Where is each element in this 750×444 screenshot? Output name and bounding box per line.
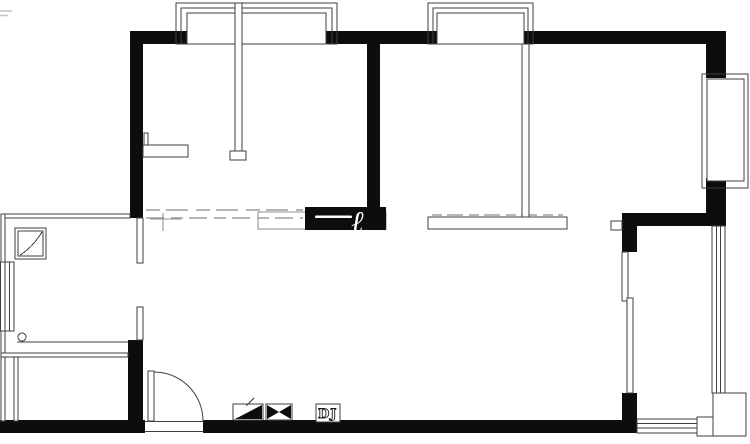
left-wall-upper <box>1 214 5 262</box>
entry-top-wall <box>3 214 130 218</box>
bay-window-top-middle <box>428 3 533 44</box>
bottom-sill <box>637 419 697 433</box>
ghost-ticks <box>150 213 181 231</box>
scan-artifact-marks <box>0 11 12 16</box>
bay-window-glass <box>707 79 744 181</box>
sliding-panel <box>627 298 633 393</box>
closet-strip <box>14 357 18 421</box>
wall-bottom-middle <box>203 420 637 433</box>
stub-balcony <box>611 221 622 230</box>
wall-bathroom-left <box>130 31 143 218</box>
bay-window-glass <box>187 13 326 44</box>
watermark-stroke <box>315 216 352 219</box>
stub-tick <box>144 133 148 145</box>
glazing-frame <box>712 226 725 393</box>
thin-wall-vertical <box>522 44 529 222</box>
sliding-panel <box>622 252 628 301</box>
wall-balcony-top <box>622 213 726 226</box>
floor-plan-canvas: DJ ℓ <box>0 0 750 444</box>
left-window <box>1 262 15 331</box>
left-wall-lower <box>1 331 5 421</box>
window-frame <box>1 262 15 331</box>
bay-window-top-left <box>176 3 337 44</box>
bay-window-glass <box>437 13 524 44</box>
bathroom-stub <box>143 133 188 157</box>
wall-watermark-block <box>305 207 386 230</box>
bay-window-right <box>702 74 748 188</box>
interior-wall-upper <box>137 218 143 263</box>
thin-wall-horizontal <box>428 217 567 229</box>
balcony-glazing <box>637 226 746 436</box>
corner-cabinet <box>15 228 46 259</box>
door-leaf <box>148 371 154 421</box>
wall-top-right <box>524 31 726 44</box>
wall-top-middle <box>326 31 437 44</box>
circle-fixture <box>18 333 26 341</box>
watermark-script-glyph: ℓ <box>351 205 364 240</box>
balcony-sliding-door <box>622 252 633 393</box>
corner-post <box>713 393 746 436</box>
wall-bedroom-divider <box>367 31 380 214</box>
door-swing-arc <box>154 372 203 421</box>
entry-door <box>145 371 203 432</box>
wall-entry-lower <box>128 340 143 423</box>
wall-balcony-left-upper <box>622 213 637 252</box>
dj-label: DJ <box>318 407 337 422</box>
wall-bottom-left <box>0 420 145 433</box>
stub-wall <box>143 145 188 157</box>
door-swing <box>154 372 203 421</box>
room-line-pair <box>1 353 128 357</box>
corner-step <box>697 417 713 436</box>
partition-wall <box>235 3 242 160</box>
wall-right-upper <box>706 31 726 78</box>
partition-endcap <box>230 151 246 160</box>
floor-plan-drawing: DJ ℓ <box>0 0 750 444</box>
interior-wall-lower <box>137 307 143 340</box>
